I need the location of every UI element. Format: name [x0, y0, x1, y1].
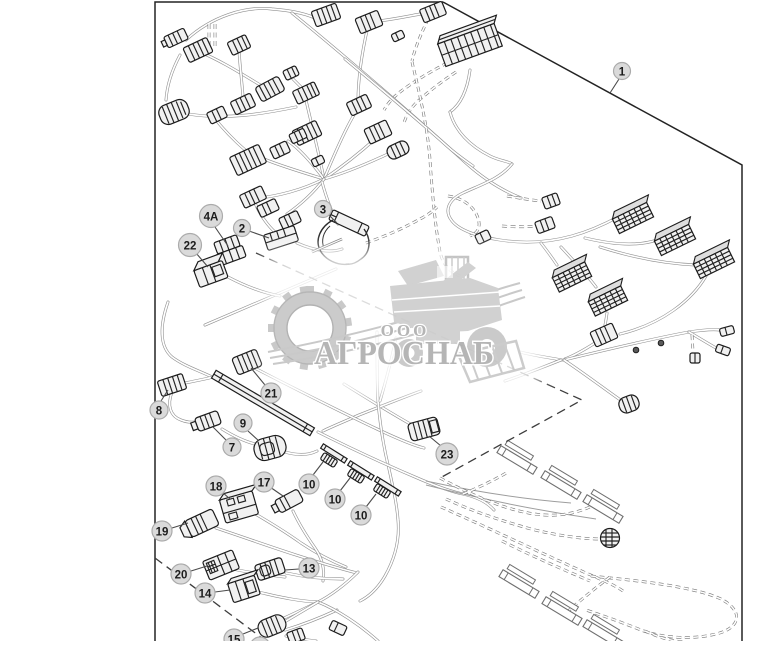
svg-text:19: 19 [156, 527, 169, 539]
svg-text:7: 7 [229, 443, 235, 455]
svg-text:2: 2 [239, 224, 245, 236]
svg-text:21: 21 [265, 389, 278, 401]
svg-text:14: 14 [199, 589, 212, 601]
svg-text:8: 8 [156, 406, 163, 418]
svg-text:20: 20 [175, 570, 188, 582]
svg-text:10: 10 [329, 495, 342, 507]
svg-text:22: 22 [184, 241, 197, 253]
svg-text:9: 9 [240, 419, 246, 431]
svg-text:АГРОСНАБ: АГРОСНАБ [314, 335, 494, 372]
svg-text:3: 3 [320, 205, 326, 217]
svg-text:18: 18 [210, 482, 223, 494]
svg-text:15: 15 [228, 635, 241, 642]
svg-text:4A: 4A [204, 212, 219, 224]
svg-text:17: 17 [258, 478, 271, 490]
svg-text:1: 1 [619, 67, 626, 79]
svg-text:13: 13 [303, 564, 316, 576]
svg-text:10: 10 [355, 511, 368, 523]
svg-text:23: 23 [441, 450, 454, 462]
svg-text:10: 10 [303, 480, 316, 492]
